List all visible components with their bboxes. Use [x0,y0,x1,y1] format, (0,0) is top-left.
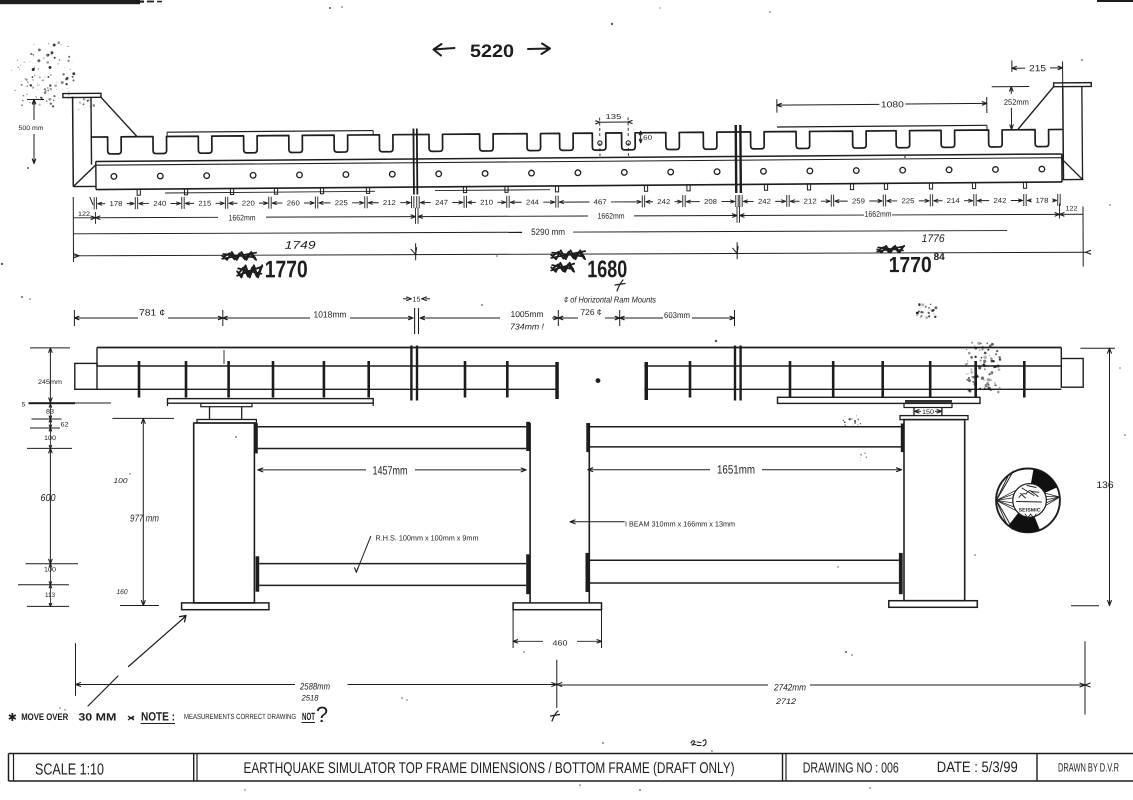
svg-text:210: 210 [480,200,493,207]
svg-text:260: 260 [287,200,300,207]
svg-text:1680: 1680 [587,256,627,283]
svg-text:135: 135 [605,114,621,121]
svg-text:781 ¢: 781 ¢ [139,308,165,318]
svg-text:242: 242 [993,198,1006,205]
svg-text:726 ¢: 726 ¢ [581,307,602,317]
svg-text:1749: 1749 [285,240,316,252]
svg-text:240: 240 [153,201,166,208]
svg-text:215: 215 [198,201,211,208]
svg-text:5: 5 [22,402,26,409]
svg-text:1457mm: 1457mm [373,464,408,478]
svg-text:122: 122 [1065,205,1077,212]
svg-text:467: 467 [594,199,607,206]
svg-text:EARTHQUAKE SIMULATOR TOP FRA: EARTHQUAKE SIMULATOR TOP FRAME DIMENSION… [244,760,735,777]
svg-text:2742mm: 2742mm [773,683,806,694]
svg-text:600: 600 [41,493,56,504]
svg-text:SCALE 1:10: SCALE 1:10 [35,762,104,779]
svg-text:I BEAM 310mm x 166mm x 13mm: I BEAM 310mm x 166mm x 13mm [625,520,735,529]
svg-text:242: 242 [758,199,771,206]
svg-text:NOTE :: NOTE : [141,710,175,724]
svg-text:62: 62 [61,422,69,429]
svg-text:84: 84 [934,252,946,263]
svg-text:1651mm: 1651mm [717,463,755,477]
svg-text:R.H.S. 100mm x 100mm x 9mm: R.H.S. 100mm x 100mm x 9mm [376,534,479,543]
svg-text:603mm: 603mm [664,310,690,320]
svg-text:1080: 1080 [881,99,904,109]
svg-text:242: 242 [657,199,670,206]
svg-text:2712: 2712 [775,697,797,706]
svg-text:259: 259 [852,198,865,205]
svg-text:160: 160 [117,589,128,596]
svg-text:225: 225 [335,200,348,207]
svg-text:5220: 5220 [470,41,514,61]
svg-text:208: 208 [704,199,717,206]
svg-text:734mm !: 734mm ! [510,322,545,332]
svg-text:1770: 1770 [265,256,308,283]
svg-text:1662mm: 1662mm [865,210,892,219]
svg-text:2588mm: 2588mm [299,682,330,693]
svg-text:220: 220 [242,200,255,207]
svg-text:MEASUREMENTS CORRECT DRAWING: MEASUREMENTS CORRECT DRAWING [184,712,296,721]
svg-text:245mm: 245mm [38,379,62,386]
svg-text:1770: 1770 [889,252,932,277]
svg-text:15: 15 [413,296,421,303]
svg-text:DRAWING NO : 006: DRAWING NO : 006 [803,761,899,777]
svg-text:150: 150 [922,409,934,416]
svg-text:60: 60 [643,135,653,142]
svg-text:1005mm: 1005mm [511,309,544,319]
svg-text:247: 247 [435,200,448,207]
svg-text:244: 244 [526,199,539,206]
svg-text:178: 178 [1035,198,1048,205]
svg-text:SEISMIC: SEISMIC [1019,508,1041,514]
svg-text:122: 122 [78,211,90,218]
svg-text:178: 178 [109,201,122,208]
svg-text:?: ? [316,702,328,727]
svg-text:30 MM: 30 MM [78,712,116,724]
svg-text:1776: 1776 [922,233,946,245]
svg-text:1018mm: 1018mm [314,310,347,320]
svg-text:500 mm: 500 mm [19,125,44,132]
svg-text:¢ of Horizontal Ram Mounts: ¢ of Horizontal Ram Mounts [564,295,657,305]
svg-text:225: 225 [901,198,914,205]
svg-text:1662mm: 1662mm [229,213,256,222]
svg-text:5290 mm: 5290 mm [531,227,565,237]
svg-text:460: 460 [553,639,568,648]
svg-text:100: 100 [114,478,128,485]
svg-text:212: 212 [383,200,396,207]
svg-text:NOT: NOT [302,711,315,723]
svg-text:DATE : 5/3/99: DATE : 5/3/99 [937,759,1018,776]
svg-text:212: 212 [804,199,817,206]
svg-text:977 mm: 977 mm [130,514,159,525]
svg-text:136: 136 [1097,480,1114,491]
svg-text:MOVE OVER: MOVE OVER [21,712,68,723]
svg-text:1662mm: 1662mm [598,212,625,221]
svg-text:✱: ✱ [8,712,17,724]
svg-text:DRAWN BY D.V.R: DRAWN BY D.V.R [1058,761,1119,775]
svg-text:215: 215 [1029,63,1046,73]
svg-text:252mm: 252mm [1004,98,1029,107]
svg-text:214: 214 [947,198,960,205]
